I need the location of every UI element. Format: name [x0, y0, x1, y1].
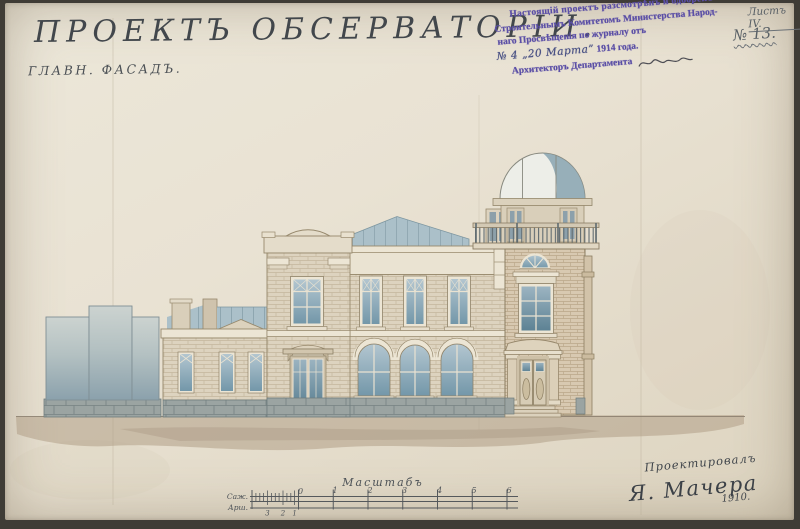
scale-title: Масштабъ: [341, 476, 423, 489]
metal-roof: [336, 217, 469, 249]
scale-number-0: 0: [298, 487, 303, 496]
main-upper-windows: [357, 276, 474, 331]
scale-minor-1: 1: [292, 510, 296, 518]
building-elevation-drawing: Масштабъ Саж. Арш. 0 1 2 3 4 5 6 3 2 1: [0, 0, 800, 529]
scale-unit-top: Саж.: [227, 492, 248, 501]
main-block: [332, 246, 508, 417]
wing-windows: [178, 352, 264, 393]
drawing-subtitle: ГЛАВН. ФАСАДЪ.: [28, 61, 182, 79]
main-arched-windows: [354, 338, 477, 399]
scale-number-1: 1: [332, 486, 337, 495]
bay-window: [287, 277, 327, 331]
stamp-year: 1914 года.: [596, 41, 639, 54]
sheet-number: № 13.: [732, 24, 776, 45]
scale-number-3: 3: [402, 486, 407, 495]
scale-number-2: 2: [366, 486, 372, 495]
scale-number-5: 5: [471, 486, 476, 495]
scale-number-4: 4: [436, 486, 442, 495]
scale-number-6: 6: [506, 486, 511, 495]
scale-minor-3: 3: [265, 510, 270, 518]
scale-bar: Масштабъ Саж. Арш. 0 1 2 3 4 5 6 3 2 1: [227, 476, 518, 518]
scale-unit-bottom: Арш.: [227, 503, 248, 512]
tower-side-pilaster: [582, 256, 594, 415]
photographed-sheet: Масштабъ Саж. Арш. 0 1 2 3 4 5 6 3 2 1 П…: [0, 0, 800, 529]
ground: [16, 415, 745, 450]
tower-window: [513, 272, 559, 338]
balcony-railing: [473, 223, 599, 249]
left-bay: [262, 230, 354, 417]
scale-minor-2: 2: [280, 510, 286, 518]
service-wing: [161, 320, 269, 418]
boundary-wall: [44, 306, 161, 417]
